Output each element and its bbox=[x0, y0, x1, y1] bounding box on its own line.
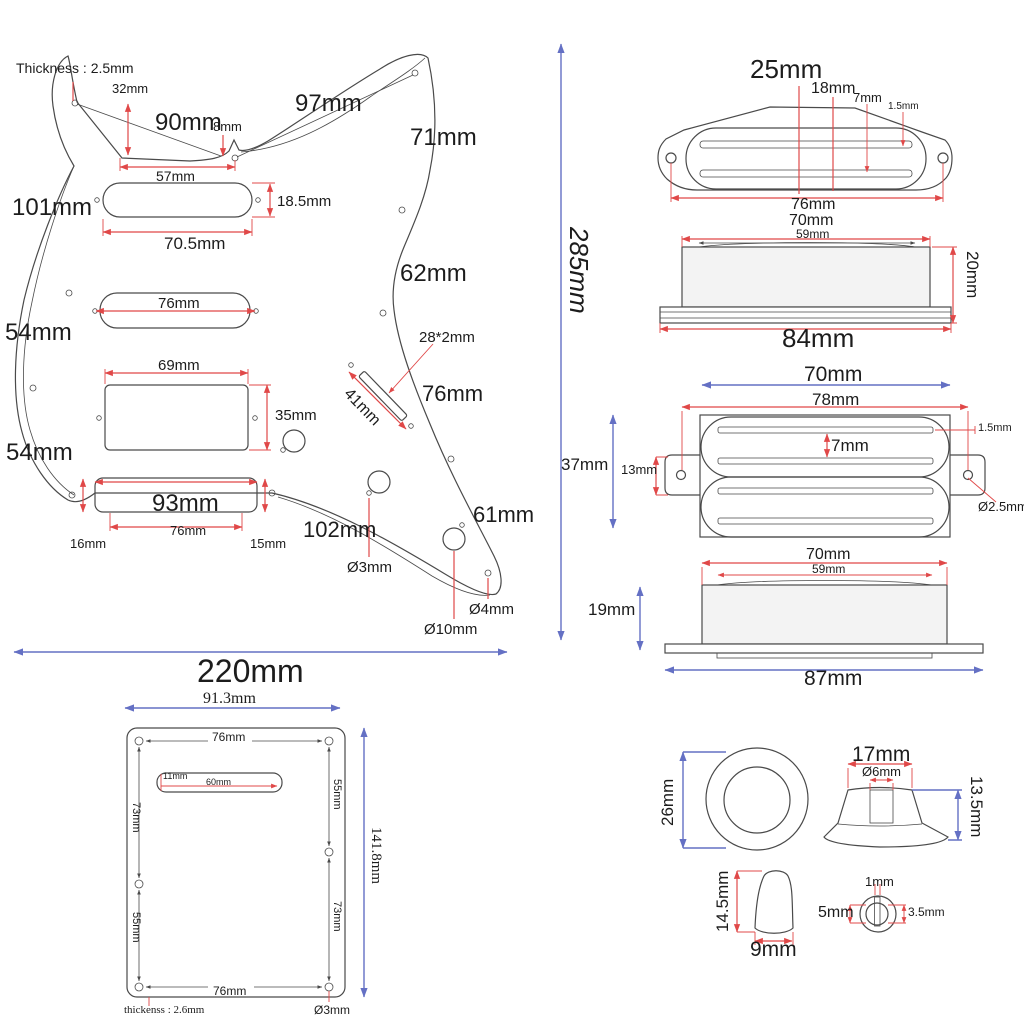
dim-93mm: 93mm bbox=[152, 492, 219, 516]
dim-73mm-left: 73mm bbox=[130, 802, 141, 833]
dim-54mm-lower: 54mm bbox=[6, 441, 73, 465]
dim-dia10mm: Ø10mm bbox=[424, 622, 477, 637]
dim-1_5mm-hb: 1.5mm bbox=[978, 423, 1012, 434]
dim-dia3mm: Ø3mm bbox=[347, 560, 392, 575]
dim-90mm: 90mm bbox=[155, 111, 222, 135]
dim-dia4mm: Ø4mm bbox=[469, 602, 514, 617]
dim-76mm-bp-top: 76mm bbox=[212, 731, 245, 743]
dim-57mm: 57mm bbox=[156, 169, 195, 183]
dim-13_5mm: 13.5mm bbox=[968, 776, 985, 837]
dim-60mm: 60mm bbox=[206, 778, 231, 787]
dim-61mm: 61mm bbox=[473, 504, 534, 526]
dim-17mm: 17mm bbox=[852, 744, 910, 765]
dim-97mm: 97mm bbox=[295, 92, 362, 116]
dim-18mm: 18mm bbox=[811, 81, 855, 97]
dim-76mm-bp-bottom: 76mm bbox=[213, 985, 246, 997]
dim-dia6mm: Ø6mm bbox=[862, 765, 901, 778]
pot-hole bbox=[368, 471, 390, 493]
dim-dia2_5mm: Ø2.5mm bbox=[978, 500, 1024, 513]
dim-5mm: 5mm bbox=[818, 905, 854, 921]
dim-32mm: 32mm bbox=[112, 82, 148, 95]
switch-tip-top-view bbox=[850, 884, 906, 932]
switch-tip-side-view bbox=[737, 871, 793, 945]
pot-hole bbox=[443, 528, 465, 550]
dim-37mm: 37mm bbox=[561, 456, 608, 473]
dim-54mm-upper: 54mm bbox=[5, 321, 72, 345]
dim-84mm: 84mm bbox=[782, 325, 854, 351]
dim-11mm: 11mm bbox=[163, 772, 187, 781]
dim-1_5mm-sc: 1.5mm bbox=[888, 102, 919, 112]
dim-220mm-total-width: 220mm bbox=[197, 655, 304, 687]
dim-71mm: 71mm bbox=[410, 126, 477, 150]
dim-102mm: 102mm bbox=[303, 519, 376, 541]
humbucker-top-view bbox=[613, 385, 996, 537]
dim-thickness-note: Thickness : 2.5mm bbox=[16, 61, 133, 75]
pickguard-dimension-diagram: Thickness : 2.5mm 32mm 90mm 8mm 57mm 18.… bbox=[0, 0, 1024, 1024]
backplate bbox=[125, 708, 364, 1006]
dim-thickness-2_6mm: thickenss : 2.6mm bbox=[124, 1005, 204, 1016]
dim-91_3mm: 91.3mm bbox=[203, 691, 256, 707]
dim-141_8mm: 141.8mm bbox=[368, 827, 383, 884]
dim-55mm-right: 55mm bbox=[331, 779, 342, 810]
dim-16mm: 16mm bbox=[70, 537, 106, 550]
dim-59mm-hb-side: 59mm bbox=[812, 563, 845, 575]
dim-59mm-sc-side: 59mm bbox=[796, 228, 829, 240]
dim-18_5mm: 18.5mm bbox=[277, 194, 331, 209]
dim-13mm: 13mm bbox=[621, 463, 657, 476]
dim-8mm: 8mm bbox=[213, 120, 242, 133]
dim-35mm: 35mm bbox=[275, 408, 317, 423]
dim-76mm-middle: 76mm bbox=[158, 296, 200, 311]
dim-26mm: 26mm bbox=[659, 779, 676, 826]
dim-87mm: 87mm bbox=[804, 668, 862, 689]
dim-62mm: 62mm bbox=[400, 262, 467, 286]
dim-25mm: 25mm bbox=[750, 56, 822, 82]
dim-76mm-bridge: 76mm bbox=[170, 524, 206, 537]
neck-pickup-opening bbox=[103, 183, 252, 217]
dim-dia3mm-bp: Ø3mm bbox=[314, 1004, 350, 1016]
dim-7mm-sc: 7mm bbox=[853, 91, 882, 104]
dim-7mm-hb: 7mm bbox=[831, 437, 869, 454]
dim-70mm-hb-side: 70mm bbox=[806, 547, 850, 563]
dim-285mm-total-height: 285mm bbox=[566, 227, 592, 314]
dim-20mm: 20mm bbox=[964, 251, 981, 298]
dim-55mm-left: 55mm bbox=[130, 912, 141, 943]
pot-hole bbox=[283, 430, 305, 452]
dim-76mm-right: 76mm bbox=[422, 383, 483, 405]
dim-101mm: 101mm bbox=[12, 196, 92, 220]
dim-19mm: 19mm bbox=[588, 601, 635, 618]
dome-knob-top-view bbox=[683, 748, 808, 850]
humbucker-side-view bbox=[640, 563, 983, 670]
humbucker-opening bbox=[105, 385, 248, 450]
dim-9mm: 9mm bbox=[750, 939, 797, 960]
dim-70_5mm: 70.5mm bbox=[164, 235, 225, 252]
dim-76mm-sc: 76mm bbox=[791, 197, 835, 213]
singlecoil-side-view bbox=[660, 236, 957, 333]
dim-28x2mm: 28*2mm bbox=[419, 330, 475, 345]
dim-15mm: 15mm bbox=[250, 537, 286, 550]
dim-70mm-hb: 70mm bbox=[804, 364, 862, 385]
overall-dimensions bbox=[14, 44, 561, 652]
dim-73mm-right: 73mm bbox=[331, 901, 342, 932]
dim-3_5mm: 3.5mm bbox=[908, 906, 945, 918]
dim-14_5mm: 14.5mm bbox=[714, 871, 731, 932]
dim-1mm: 1mm bbox=[865, 875, 894, 888]
dim-78mm: 78mm bbox=[812, 391, 859, 408]
dim-69mm: 69mm bbox=[158, 358, 200, 373]
